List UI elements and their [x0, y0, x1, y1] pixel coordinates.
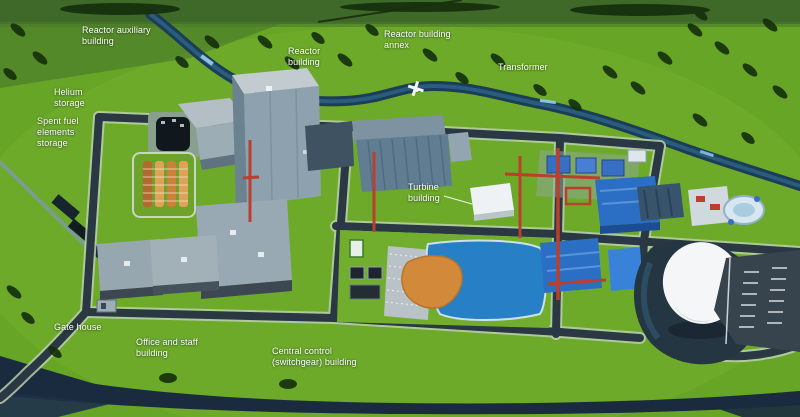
label-reactor-building: Reactor building — [288, 46, 338, 68]
label-reactor-building-annex: Reactor building annex — [384, 29, 470, 51]
label-turbine-building: Turbine building — [408, 182, 456, 204]
spent-fuel-storage — [133, 153, 195, 217]
plant-site-diagram: Reactor auxiliary building Reactor build… — [0, 0, 800, 417]
cooling-pond-area — [337, 230, 552, 328]
parking-lot — [714, 250, 800, 352]
label-gate-house: Gate house — [54, 322, 102, 333]
label-helium-storage: Helium storage — [54, 87, 102, 109]
site-illustration — [0, 0, 800, 417]
label-central-control-building: Central control (switchgear) building — [272, 346, 372, 368]
label-reactor-auxiliary-building: Reactor auxiliary building — [82, 25, 174, 47]
label-office-staff-building: Office and staff building — [136, 337, 224, 359]
label-transformer: Transformer — [498, 62, 548, 73]
office-staff-buildings — [97, 235, 219, 300]
label-spent-fuel-storage: Spent fuel elements storage — [37, 116, 95, 149]
gate-house — [97, 300, 116, 312]
